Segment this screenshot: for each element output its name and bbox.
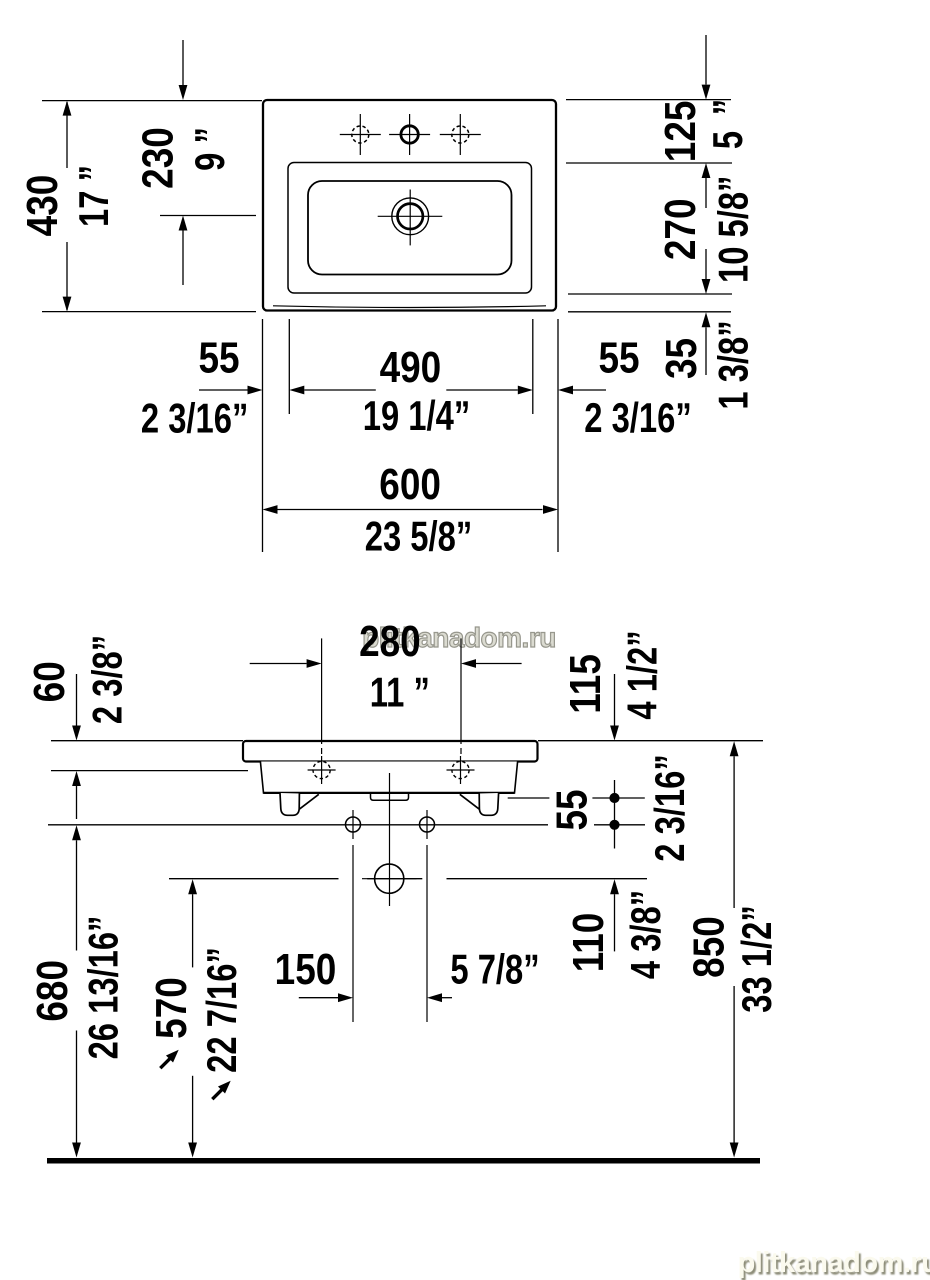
svg-text:33 1/2”: 33 1/2” bbox=[733, 905, 780, 1012]
svg-text:55: 55 bbox=[546, 789, 596, 830]
svg-text:125: 125 bbox=[655, 101, 705, 163]
svg-text:26 13/16”: 26 13/16” bbox=[80, 916, 127, 1060]
svg-text:570: 570 bbox=[146, 977, 196, 1039]
svg-text:270: 270 bbox=[655, 198, 705, 260]
svg-text:600: 600 bbox=[379, 459, 441, 509]
svg-text:5 7/8”: 5 7/8” bbox=[450, 946, 539, 993]
svg-text:110: 110 bbox=[563, 913, 613, 973]
svg-text:60: 60 bbox=[24, 661, 74, 702]
svg-text:680: 680 bbox=[27, 960, 77, 1022]
svg-text:19 1/4”: 19 1/4” bbox=[363, 392, 470, 439]
svg-text:55: 55 bbox=[198, 332, 239, 382]
svg-text:2 3/16”: 2 3/16” bbox=[646, 754, 693, 861]
svg-text:1 3/8”: 1 3/8” bbox=[710, 320, 757, 409]
svg-text:9 ”: 9 ” bbox=[186, 127, 233, 171]
svg-text:2 3/16”: 2 3/16” bbox=[141, 395, 248, 442]
svg-text:55: 55 bbox=[598, 332, 639, 382]
svg-text:35: 35 bbox=[656, 338, 706, 379]
svg-text:2 3/16”: 2 3/16” bbox=[584, 394, 691, 441]
svg-text:4 1/2”: 4 1/2” bbox=[619, 630, 666, 719]
svg-text:490: 490 bbox=[380, 342, 442, 392]
svg-text:2 3/8”: 2 3/8” bbox=[84, 635, 131, 724]
svg-text:22 7/16”: 22 7/16” bbox=[198, 947, 245, 1073]
svg-text:280: 280 bbox=[359, 616, 421, 666]
svg-text:430: 430 bbox=[17, 175, 67, 237]
svg-text:230: 230 bbox=[132, 127, 182, 189]
svg-text:10 5/8”: 10 5/8” bbox=[710, 176, 757, 283]
svg-text:850: 850 bbox=[684, 916, 734, 978]
svg-text:5 ”: 5 ” bbox=[704, 99, 751, 149]
svg-text:115: 115 bbox=[560, 654, 610, 714]
svg-text:23 5/8”: 23 5/8” bbox=[365, 513, 472, 560]
svg-text:150: 150 bbox=[275, 944, 337, 994]
svg-text:11 ”: 11 ” bbox=[370, 668, 430, 715]
svg-text:4 3/8”: 4 3/8” bbox=[622, 890, 669, 979]
svg-text:17 ”: 17 ” bbox=[70, 165, 117, 227]
svg-text:plitkanadom.ru: plitkanadom.ru bbox=[738, 1247, 930, 1279]
